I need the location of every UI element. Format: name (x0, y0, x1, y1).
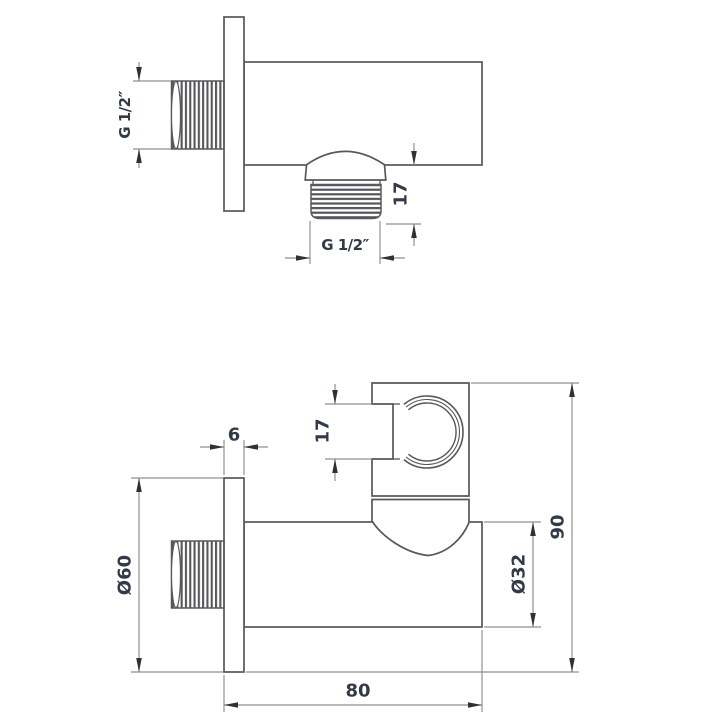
dim-label-side-thread: G 1/2″ (116, 90, 134, 138)
dim-label-overall-height: 90 (548, 514, 569, 539)
wall-plate (224, 17, 244, 211)
arrow-up-icon (411, 224, 417, 238)
dim-holder-slot: 17 (313, 384, 373, 481)
dim-body-diameter: Ø32 (484, 522, 541, 627)
arrow-down-icon (136, 658, 142, 672)
dim-label-body-diameter: Ø32 (509, 554, 530, 594)
dim-overall-depth: 80 (224, 630, 482, 712)
side-thread-end-cap (172, 542, 181, 608)
valve-body (244, 62, 482, 165)
top-view: G 1/2″ 17 G 1/2″ (116, 17, 482, 264)
outlet-thread (311, 185, 381, 219)
wall-plate (224, 478, 244, 672)
dim-label-holder-slot: 17 (313, 418, 334, 443)
drawing-canvas: G 1/2″ 17 G 1/2″ (0, 0, 720, 720)
dim-label-overall-depth: 80 (345, 681, 370, 702)
arrow-up-icon (530, 522, 536, 536)
dim-outlet-thread: G 1/2″ (285, 221, 405, 264)
arrow-down-icon (530, 613, 536, 627)
arrow-down-icon (569, 658, 575, 672)
arrow-up-icon (136, 478, 142, 492)
dim-label-plate-thickness: 6 (228, 425, 241, 446)
arrow-left-icon (244, 444, 258, 450)
front-view: 6 17 Ø60 Ø32 (115, 383, 580, 712)
arrow-up-icon (569, 383, 575, 397)
dim-plate-thickness: 6 (200, 425, 268, 476)
technical-drawing: G 1/2″ 17 G 1/2″ (0, 0, 720, 720)
arrow-right-icon (468, 702, 482, 708)
dim-label-outlet-height: 17 (391, 181, 412, 206)
arrow-up-icon (332, 459, 338, 473)
dim-label-outlet-thread: G 1/2″ (321, 236, 369, 254)
arrow-right-icon (296, 255, 310, 261)
arrow-down-icon (332, 390, 338, 404)
arrow-left-icon (380, 255, 394, 261)
side-thread-end-cap (172, 82, 181, 149)
dim-label-flange-diameter: Ø60 (115, 555, 136, 595)
arrow-down-icon (136, 67, 142, 81)
arrow-left-icon (224, 702, 238, 708)
arrow-up-icon (136, 149, 142, 163)
dim-side-thread: G 1/2″ (116, 62, 171, 168)
arrow-right-icon (210, 444, 224, 450)
